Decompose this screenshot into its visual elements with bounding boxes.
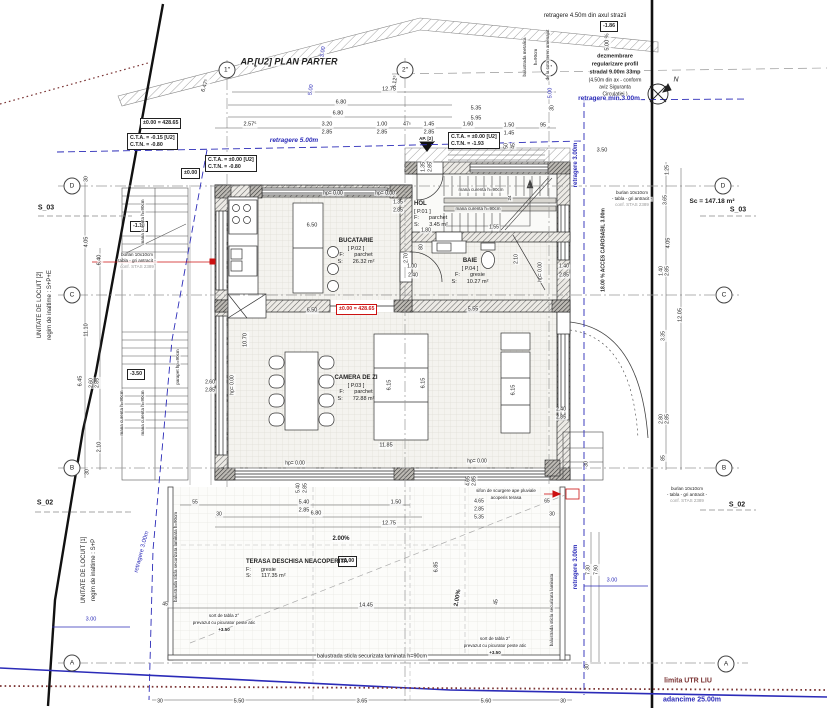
unit2-label: UNITATE DE LOCUIT [2] bbox=[37, 271, 43, 340]
dim-label: 1.55 bbox=[488, 226, 500, 231]
dim-label: 6.50 bbox=[306, 223, 319, 229]
dim-label: 4.05 bbox=[666, 237, 672, 250]
floor-plan-canvas: DCBADCBA1″2″3″ ±0.00 = 428.65C.T.A. = -0… bbox=[0, 0, 827, 708]
level-box: -1.86 bbox=[600, 21, 618, 32]
dim-label: 2.40 bbox=[407, 274, 419, 279]
dim-label: 1.50 bbox=[503, 123, 516, 129]
finish-value: parchet bbox=[354, 389, 372, 396]
room-finish-row: S:117.35 m² bbox=[246, 573, 348, 580]
grid-bubble: C bbox=[64, 287, 81, 304]
dim-label: 14.45 bbox=[358, 603, 374, 609]
level-text: -3.50 bbox=[130, 371, 142, 378]
note-label: tabla - gri antracit - bbox=[117, 259, 157, 264]
room-name: BAIE bbox=[452, 258, 489, 266]
finish-value: 10.27 m² bbox=[467, 279, 489, 286]
note-label: prevazut cu picurator peste atic bbox=[463, 644, 528, 649]
note-label: regim de inaltime : S+P+E bbox=[47, 269, 53, 341]
note-label: sort de tabla 2° bbox=[479, 637, 511, 642]
dim-label: 5.00 % bbox=[605, 32, 611, 51]
note-label: mana curenta h=90cm bbox=[141, 390, 146, 437]
chair-icon bbox=[269, 356, 284, 369]
finish-value: 72.88 m² bbox=[353, 396, 375, 403]
dim-label: 2.85 bbox=[473, 508, 485, 513]
unit1-label: UNITATE DE LOCUIT [1] bbox=[81, 536, 87, 605]
room-name: BUCATARIE bbox=[338, 238, 375, 246]
finish-value: gresie bbox=[470, 272, 485, 279]
dim-label: 3.65 bbox=[356, 699, 369, 705]
note-label: - tabla - gri antracit - bbox=[666, 493, 708, 498]
grid-bubble: B bbox=[64, 460, 81, 477]
note-label: regularizare profil bbox=[591, 62, 639, 68]
dim-label: 5.50 bbox=[233, 699, 246, 705]
setback-min-label: retragere min.3.00m bbox=[577, 96, 641, 103]
note-label: retragere 3.00m bbox=[573, 544, 579, 591]
note-label: balustrada metalica bbox=[523, 36, 528, 77]
room-code: [ P.03 ] bbox=[334, 383, 377, 390]
dim-label: 2.85 bbox=[392, 209, 404, 214]
note-label: hp= 0.00 bbox=[374, 192, 396, 197]
sink-icon bbox=[231, 249, 242, 259]
level-text: C.T.N. = -1.93 bbox=[451, 141, 497, 148]
finish-label: F: bbox=[246, 567, 251, 574]
dim-label: 5.00 bbox=[548, 87, 554, 100]
dim-label: 6.85 bbox=[434, 561, 440, 574]
dim-label: 2.85 bbox=[321, 130, 334, 136]
dim-label: 1.50 bbox=[390, 500, 403, 506]
finish-label: F: bbox=[339, 252, 344, 259]
dim-label: 6.80 bbox=[332, 111, 345, 117]
level-box: -3.50 bbox=[127, 369, 145, 380]
room-code: [ P.02 ] bbox=[338, 246, 375, 253]
grid-bubble: B bbox=[716, 460, 733, 477]
room-label-camera-de-zi: CAMERA DE ZI[ P.03 ]F:parchetS:72.88 m² bbox=[334, 375, 377, 403]
level-text: ±0.00 bbox=[184, 170, 197, 177]
north-label: N bbox=[672, 77, 679, 84]
dim-label: 5.55 bbox=[467, 307, 480, 313]
dim-label: 65 bbox=[543, 500, 551, 505]
dim-label: 5.40 bbox=[297, 482, 302, 494]
room-label-hol: HOL[ P.01 ]F:parchetS:3.45 m² bbox=[414, 201, 448, 229]
note-label: - tabla - gri antracit - bbox=[611, 197, 653, 202]
setback-3m-label: retragere 3.00m bbox=[573, 142, 579, 189]
level-box: C.T.A. = -0.15 [U2]C.T.N. = -0.80 bbox=[127, 133, 178, 150]
finish-label: S: bbox=[452, 279, 457, 286]
dim-label: 2.00% bbox=[331, 536, 350, 542]
dim-label: 1.60 bbox=[462, 122, 475, 128]
finish-label: S: bbox=[338, 259, 343, 266]
dim-label: 95 bbox=[539, 123, 547, 129]
setback-5m-label: retragere 5.00m bbox=[269, 138, 319, 145]
room-label-baie: BAIE[ P.04 ]F:gresieS:10.27 m² bbox=[452, 258, 489, 286]
dim-label: 2.85 bbox=[555, 416, 567, 421]
dim-label: 3.50 bbox=[596, 148, 609, 154]
section-marker: S_02 bbox=[36, 500, 54, 507]
level-text: C.T.N. = -0.80 bbox=[208, 164, 254, 171]
finish-value: gresie bbox=[261, 567, 276, 574]
dim-label: 6.45 bbox=[78, 375, 84, 388]
dim-label: 2.60 bbox=[204, 381, 216, 386]
note-label: prevazut cu picurator peste atic bbox=[192, 621, 257, 626]
dim-label: 30 bbox=[156, 700, 164, 705]
dim-label: 2.70 bbox=[405, 252, 410, 264]
note-label: hp= 0.00 bbox=[539, 261, 544, 283]
room-code: [ P.04 ] bbox=[452, 266, 489, 273]
dim-label: 1.35 bbox=[392, 201, 404, 206]
dim-label: 45 bbox=[512, 142, 517, 150]
room-finish-row: F:gresie bbox=[452, 272, 489, 279]
level-text: C.T.N. = -0.80 bbox=[130, 142, 175, 149]
dim-label: 5.35 bbox=[470, 106, 483, 112]
dim-label: 4.05 bbox=[84, 236, 90, 249]
dim-label: 2.85 bbox=[558, 274, 570, 279]
note-label: hp= 0.00 bbox=[322, 192, 344, 197]
note-label: burlan 10x10cm bbox=[615, 191, 649, 196]
dim-label: 30 bbox=[86, 468, 91, 476]
dim-label: 3.65 bbox=[664, 194, 669, 206]
level-box-red: ±0.00 = 428.65 bbox=[336, 304, 377, 315]
room-label-terasa-deschisa-neacoperita: TERASA DESCHISA NEACOPERITAF:gresieS:117… bbox=[246, 559, 348, 580]
dim-label: 1.35 bbox=[422, 161, 427, 173]
note-label: mana curenta h=90cm bbox=[120, 390, 125, 437]
room-code: [ P.01 ] bbox=[414, 209, 448, 216]
dim-label: 80 bbox=[420, 243, 425, 251]
dim-label: 11.10 bbox=[84, 322, 90, 337]
finish-value: 117.35 m² bbox=[261, 573, 285, 580]
grid-bubble: A bbox=[718, 656, 735, 673]
finish-label: S: bbox=[414, 222, 419, 229]
dim-label: 6.15 bbox=[421, 377, 427, 390]
note-label: hp= 0.00 bbox=[231, 374, 236, 396]
room-finish-row: S:72.88 m² bbox=[334, 396, 377, 403]
room-finish-row: F:parchet bbox=[334, 389, 377, 396]
grid-bubble: C bbox=[716, 287, 733, 304]
note-label: (4.50m din ax - conform bbox=[588, 79, 643, 84]
dim-label: +3.50 bbox=[217, 628, 230, 633]
dim-label: 1.45 bbox=[423, 122, 436, 128]
dim-label: 30 bbox=[548, 513, 556, 518]
finish-label: F: bbox=[414, 215, 419, 222]
dim-label: 2.85 bbox=[666, 413, 671, 425]
drain-note: sifon de scurgere ape pluviale bbox=[475, 489, 537, 494]
dim-label: 55 bbox=[191, 501, 199, 506]
dim-label: 2.85 bbox=[298, 508, 311, 514]
dim-label: 12.75 bbox=[381, 521, 397, 527]
dim-label: 1.45 bbox=[503, 131, 516, 137]
room-name: CAMERA DE ZI bbox=[334, 375, 377, 383]
note-label: h=90cm bbox=[534, 48, 539, 66]
dim-label: 2.85 bbox=[473, 475, 478, 487]
note-label: mana curenta h=90cm bbox=[141, 199, 146, 246]
dim-label: 7.30 bbox=[587, 564, 592, 576]
entry-label: AP. [2] bbox=[418, 137, 434, 142]
dim-label: 30 bbox=[559, 700, 567, 705]
railing-note: balustrada sticla securizata laminata h=… bbox=[316, 654, 428, 660]
dining-table bbox=[285, 352, 318, 430]
entry-steps bbox=[405, 148, 570, 162]
section-marker: S_03 bbox=[37, 205, 55, 212]
limit-utr-label: limita UTR LIU bbox=[663, 678, 713, 685]
room-finish-row: F:parchet bbox=[338, 252, 375, 259]
dim-label: 50 bbox=[505, 142, 510, 150]
dim-label: 6.15 bbox=[387, 379, 393, 392]
dim-label: 1.00 bbox=[406, 265, 418, 270]
grid-bubble: D bbox=[64, 178, 81, 195]
depth-label: adancime 25.00m bbox=[662, 697, 722, 704]
level-text: C.T.A. = ±0.00 [U2] bbox=[451, 134, 497, 141]
dim-label: 2.10 bbox=[515, 253, 520, 265]
dim-label: 30 bbox=[215, 513, 223, 518]
stove-burner-icon bbox=[233, 205, 240, 212]
dim-label: 10.70 bbox=[243, 332, 249, 348]
dim-label: 2.85 bbox=[376, 130, 389, 136]
dim-label: 45 bbox=[161, 603, 169, 608]
note-label: conf. STAS 2389 bbox=[614, 203, 650, 208]
dim-label: 2.85 bbox=[204, 389, 216, 394]
dim-label: 12.75 bbox=[381, 87, 397, 93]
room-finish-row: S:10.27 m² bbox=[452, 279, 489, 286]
dim-label: 5.60 bbox=[480, 699, 493, 705]
dim-label: 3.00 bbox=[606, 578, 619, 584]
finish-value: 3.45 m² bbox=[429, 222, 448, 229]
room-label-bucatarie: BUCATARIE[ P.02 ]F:parchetS:26.32 m² bbox=[338, 238, 375, 266]
note-label: conf. STAS 2389 bbox=[669, 499, 705, 504]
note-label: regim de inaltime : S+P bbox=[91, 538, 97, 602]
dim-label: 3.35 bbox=[662, 330, 667, 342]
railing-note: balustrada sticla securizata laminata h=… bbox=[174, 511, 179, 603]
setback-street-label: retragere 4.50m din axul strazii bbox=[543, 13, 627, 19]
level-text: C.T.A. = -0.15 [U2] bbox=[130, 135, 175, 142]
dim-label: 11.85 bbox=[378, 443, 393, 449]
dim-label: 6.15 bbox=[511, 384, 517, 397]
level-text: ±0.00 = 428.65 bbox=[339, 306, 374, 313]
room-name: HOL bbox=[414, 201, 448, 209]
dim-label: 6.80 bbox=[335, 100, 348, 106]
note-label: conf. STAS 2389 bbox=[119, 265, 155, 270]
level-text: ±0.00 = 428.65 bbox=[143, 120, 178, 127]
dim-label: 2.85 bbox=[304, 482, 309, 494]
level-text: -1.86 bbox=[603, 23, 615, 30]
dim-label: 30 bbox=[551, 104, 556, 112]
section-marker: S_02 bbox=[728, 502, 746, 509]
built-area-label: Sc = 147.18 m² bbox=[689, 199, 736, 206]
dim-label: 24 bbox=[508, 194, 513, 201]
note-label: mana curenta h=90cm bbox=[458, 188, 505, 193]
dim-label: 30 bbox=[85, 175, 90, 183]
dim-label: 2.10 bbox=[97, 441, 103, 454]
dim-label: 5.35 bbox=[473, 516, 485, 521]
finish-value: parchet bbox=[354, 252, 372, 259]
dim-label: 1.00 bbox=[376, 122, 389, 128]
level-box: C.T.A. = ±0.00 [U2]C.T.N. = -0.80 bbox=[205, 155, 257, 172]
dim-label: 6.80 bbox=[310, 511, 323, 517]
dim-label: 45 bbox=[495, 598, 500, 606]
note-label: aviz Siguranta bbox=[598, 86, 632, 91]
floor-plan-drawing bbox=[0, 0, 827, 708]
finish-value: 26.32 m² bbox=[353, 259, 375, 266]
dim-label: 7.90 bbox=[595, 564, 600, 576]
dim-label: 30 bbox=[585, 460, 590, 468]
note-label: mana curenta h=90cm bbox=[455, 207, 502, 212]
finish-label: F: bbox=[455, 272, 460, 279]
dim-label: 2.57⁵ bbox=[243, 122, 258, 128]
dim-label: 4.65 bbox=[473, 500, 485, 505]
toilet-tank bbox=[481, 243, 495, 250]
note-label: hp= 0.00 bbox=[466, 460, 488, 465]
dim-label: 3.00 bbox=[85, 617, 98, 623]
note-dezmembrare: dezmembrare bbox=[596, 54, 634, 60]
note-label: hp= 0.00 bbox=[284, 462, 306, 467]
dim-label: 1.40 bbox=[558, 265, 570, 270]
plan-title: AP.[U2] PLAN PARTER bbox=[239, 58, 338, 67]
dim-label: 2.85 bbox=[96, 377, 101, 389]
dim-label: +3.50 bbox=[488, 651, 501, 656]
dim-label: 85 bbox=[662, 454, 667, 462]
dim-label: 1.80 bbox=[420, 229, 432, 234]
grid-bubble: A bbox=[64, 655, 81, 672]
dim-label: 2.85 bbox=[666, 265, 671, 277]
dim-label: 47⁵ bbox=[402, 123, 412, 128]
note-label: parapet hp=90cm bbox=[176, 348, 181, 385]
access-label: 18.00 % ACCES CAROSABIL 3.00m bbox=[602, 207, 607, 293]
finish-label: F: bbox=[339, 389, 344, 396]
dim-label: 5.40 bbox=[298, 500, 311, 506]
note-label: acoperis terasa bbox=[490, 496, 523, 501]
level-box: ±0.00 bbox=[181, 168, 200, 179]
dim-label: 2.85 bbox=[429, 161, 434, 173]
section-marker: S_03 bbox=[729, 207, 747, 214]
note-label: sort de tabla 2° bbox=[208, 614, 240, 619]
room-finish-row: F:parchet bbox=[414, 215, 448, 222]
dim-label: 3.20 bbox=[321, 122, 334, 128]
room-name: TERASA DESCHISA NEACOPERITA bbox=[246, 559, 348, 567]
level-box: ±0.00 = 428.65 bbox=[140, 118, 181, 129]
gate-swing bbox=[563, 322, 648, 480]
dim-label: 30 bbox=[586, 663, 591, 671]
dim-label: 12.05 bbox=[678, 307, 684, 323]
note-label: de la cota teren amenajat bbox=[546, 29, 551, 82]
dim-label: 1.25 bbox=[666, 164, 671, 176]
finish-value: parchet bbox=[429, 215, 447, 222]
room-finish-row: F:gresie bbox=[246, 567, 348, 574]
dim-label: 2.40 bbox=[555, 408, 567, 413]
note-label: burlan 10x10cm bbox=[120, 253, 154, 258]
finish-label: S: bbox=[246, 573, 251, 580]
grid-bubble: 1″ bbox=[219, 62, 236, 79]
finish-label: S: bbox=[338, 396, 343, 403]
grid-bubble: D bbox=[715, 178, 732, 195]
dim-label: 6.50 bbox=[306, 308, 319, 314]
note-label: stradal 9.00m 33mp bbox=[588, 70, 641, 76]
note-label: burlan 10x10cm bbox=[670, 487, 704, 492]
dim-label: 6.40 bbox=[97, 254, 103, 267]
railing-note: balustrada sticla securizata laminata bbox=[550, 573, 555, 648]
level-text: C.T.A. = ±0.00 [U2] bbox=[208, 157, 254, 164]
room-finish-row: S:26.32 m² bbox=[338, 259, 375, 266]
level-box: C.T.A. = ±0.00 [U2]C.T.N. = -1.93 bbox=[448, 132, 500, 149]
